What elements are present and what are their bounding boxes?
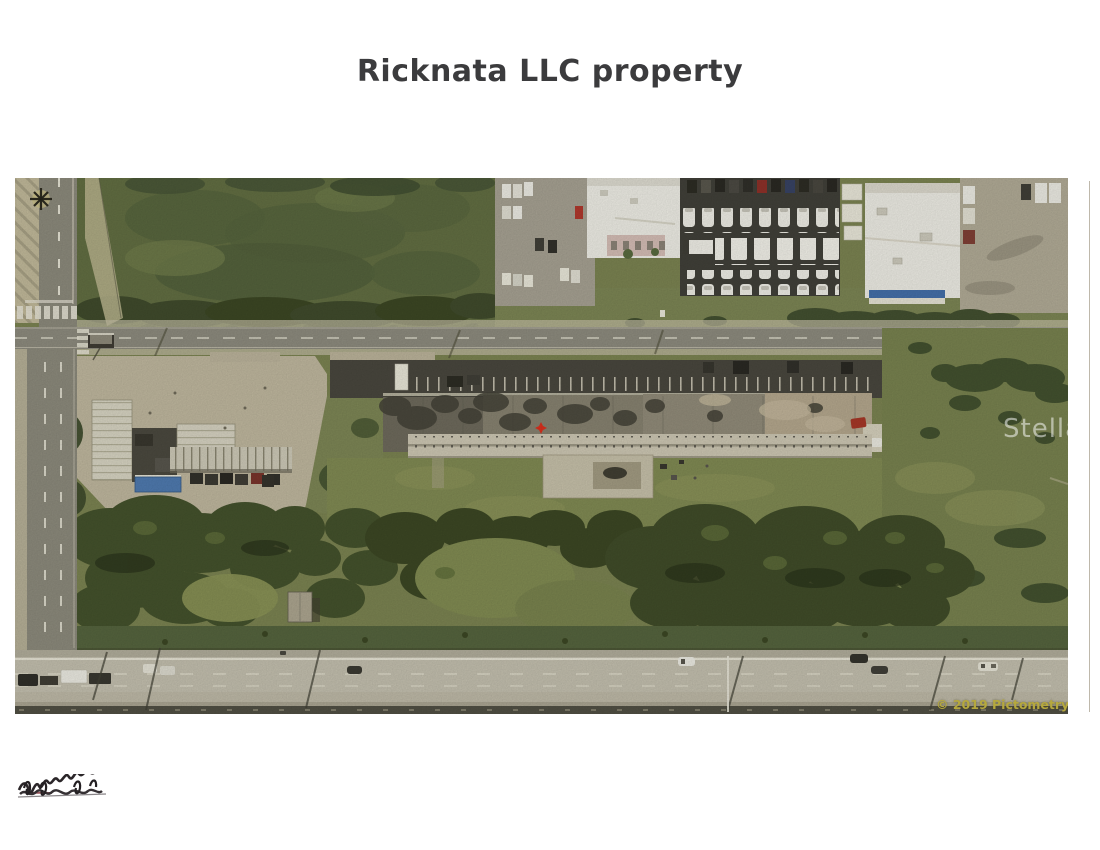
aerial-photo: StellarMLS © 2019 Pictometry <box>15 178 1068 714</box>
pictometry-copyright: © 2019 Pictometry <box>936 697 1068 712</box>
aerial-photo-graphic <box>15 178 1068 714</box>
page-title: Ricknata LLC property <box>0 54 1100 89</box>
scribbled-date-icon <box>16 774 116 806</box>
scan-artifact-line-icon <box>1089 181 1090 712</box>
stellar-mls-watermark: StellarMLS <box>1003 414 1068 444</box>
film-grain-overlay <box>15 178 1068 714</box>
scanned-page: Ricknata LLC property <box>0 0 1100 850</box>
